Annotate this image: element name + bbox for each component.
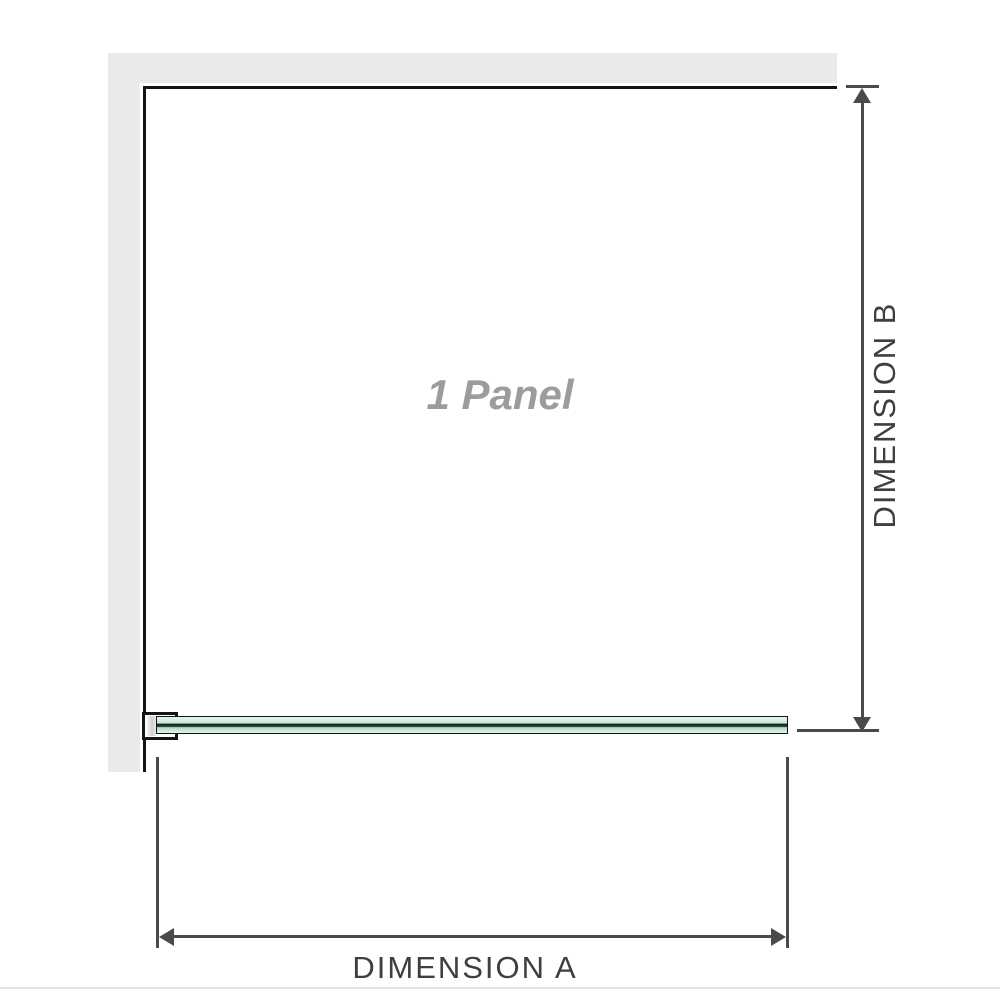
dimension-a-line xyxy=(172,935,773,938)
glass-panel xyxy=(156,716,788,734)
dimension-a-label: DIMENSION A xyxy=(352,950,577,986)
dimension-a-extension-line-right xyxy=(786,757,789,948)
bracket-mount-plate xyxy=(147,716,156,736)
wall-top xyxy=(108,53,837,83)
dimension-b-label: DIMENSION B xyxy=(867,302,903,529)
dimension-a-extension-line-left xyxy=(156,757,159,948)
wall-left xyxy=(108,53,140,772)
enclosure-border-left xyxy=(143,86,146,772)
dimension-a-arrowhead-left-icon xyxy=(159,928,174,946)
dimension-a-arrowhead-right-icon xyxy=(771,928,786,946)
dimension-b-line xyxy=(861,99,864,720)
diagram-canvas: 1 Panel DIMENSION B DIMENSION A xyxy=(0,0,1000,1000)
bottom-divider xyxy=(0,987,1000,989)
dimension-b-arrowhead-up-icon xyxy=(853,88,871,103)
enclosure-border-top xyxy=(143,86,837,89)
dimension-b-arrowhead-down-icon xyxy=(853,717,871,732)
panel-label: 1 Panel xyxy=(426,371,573,419)
